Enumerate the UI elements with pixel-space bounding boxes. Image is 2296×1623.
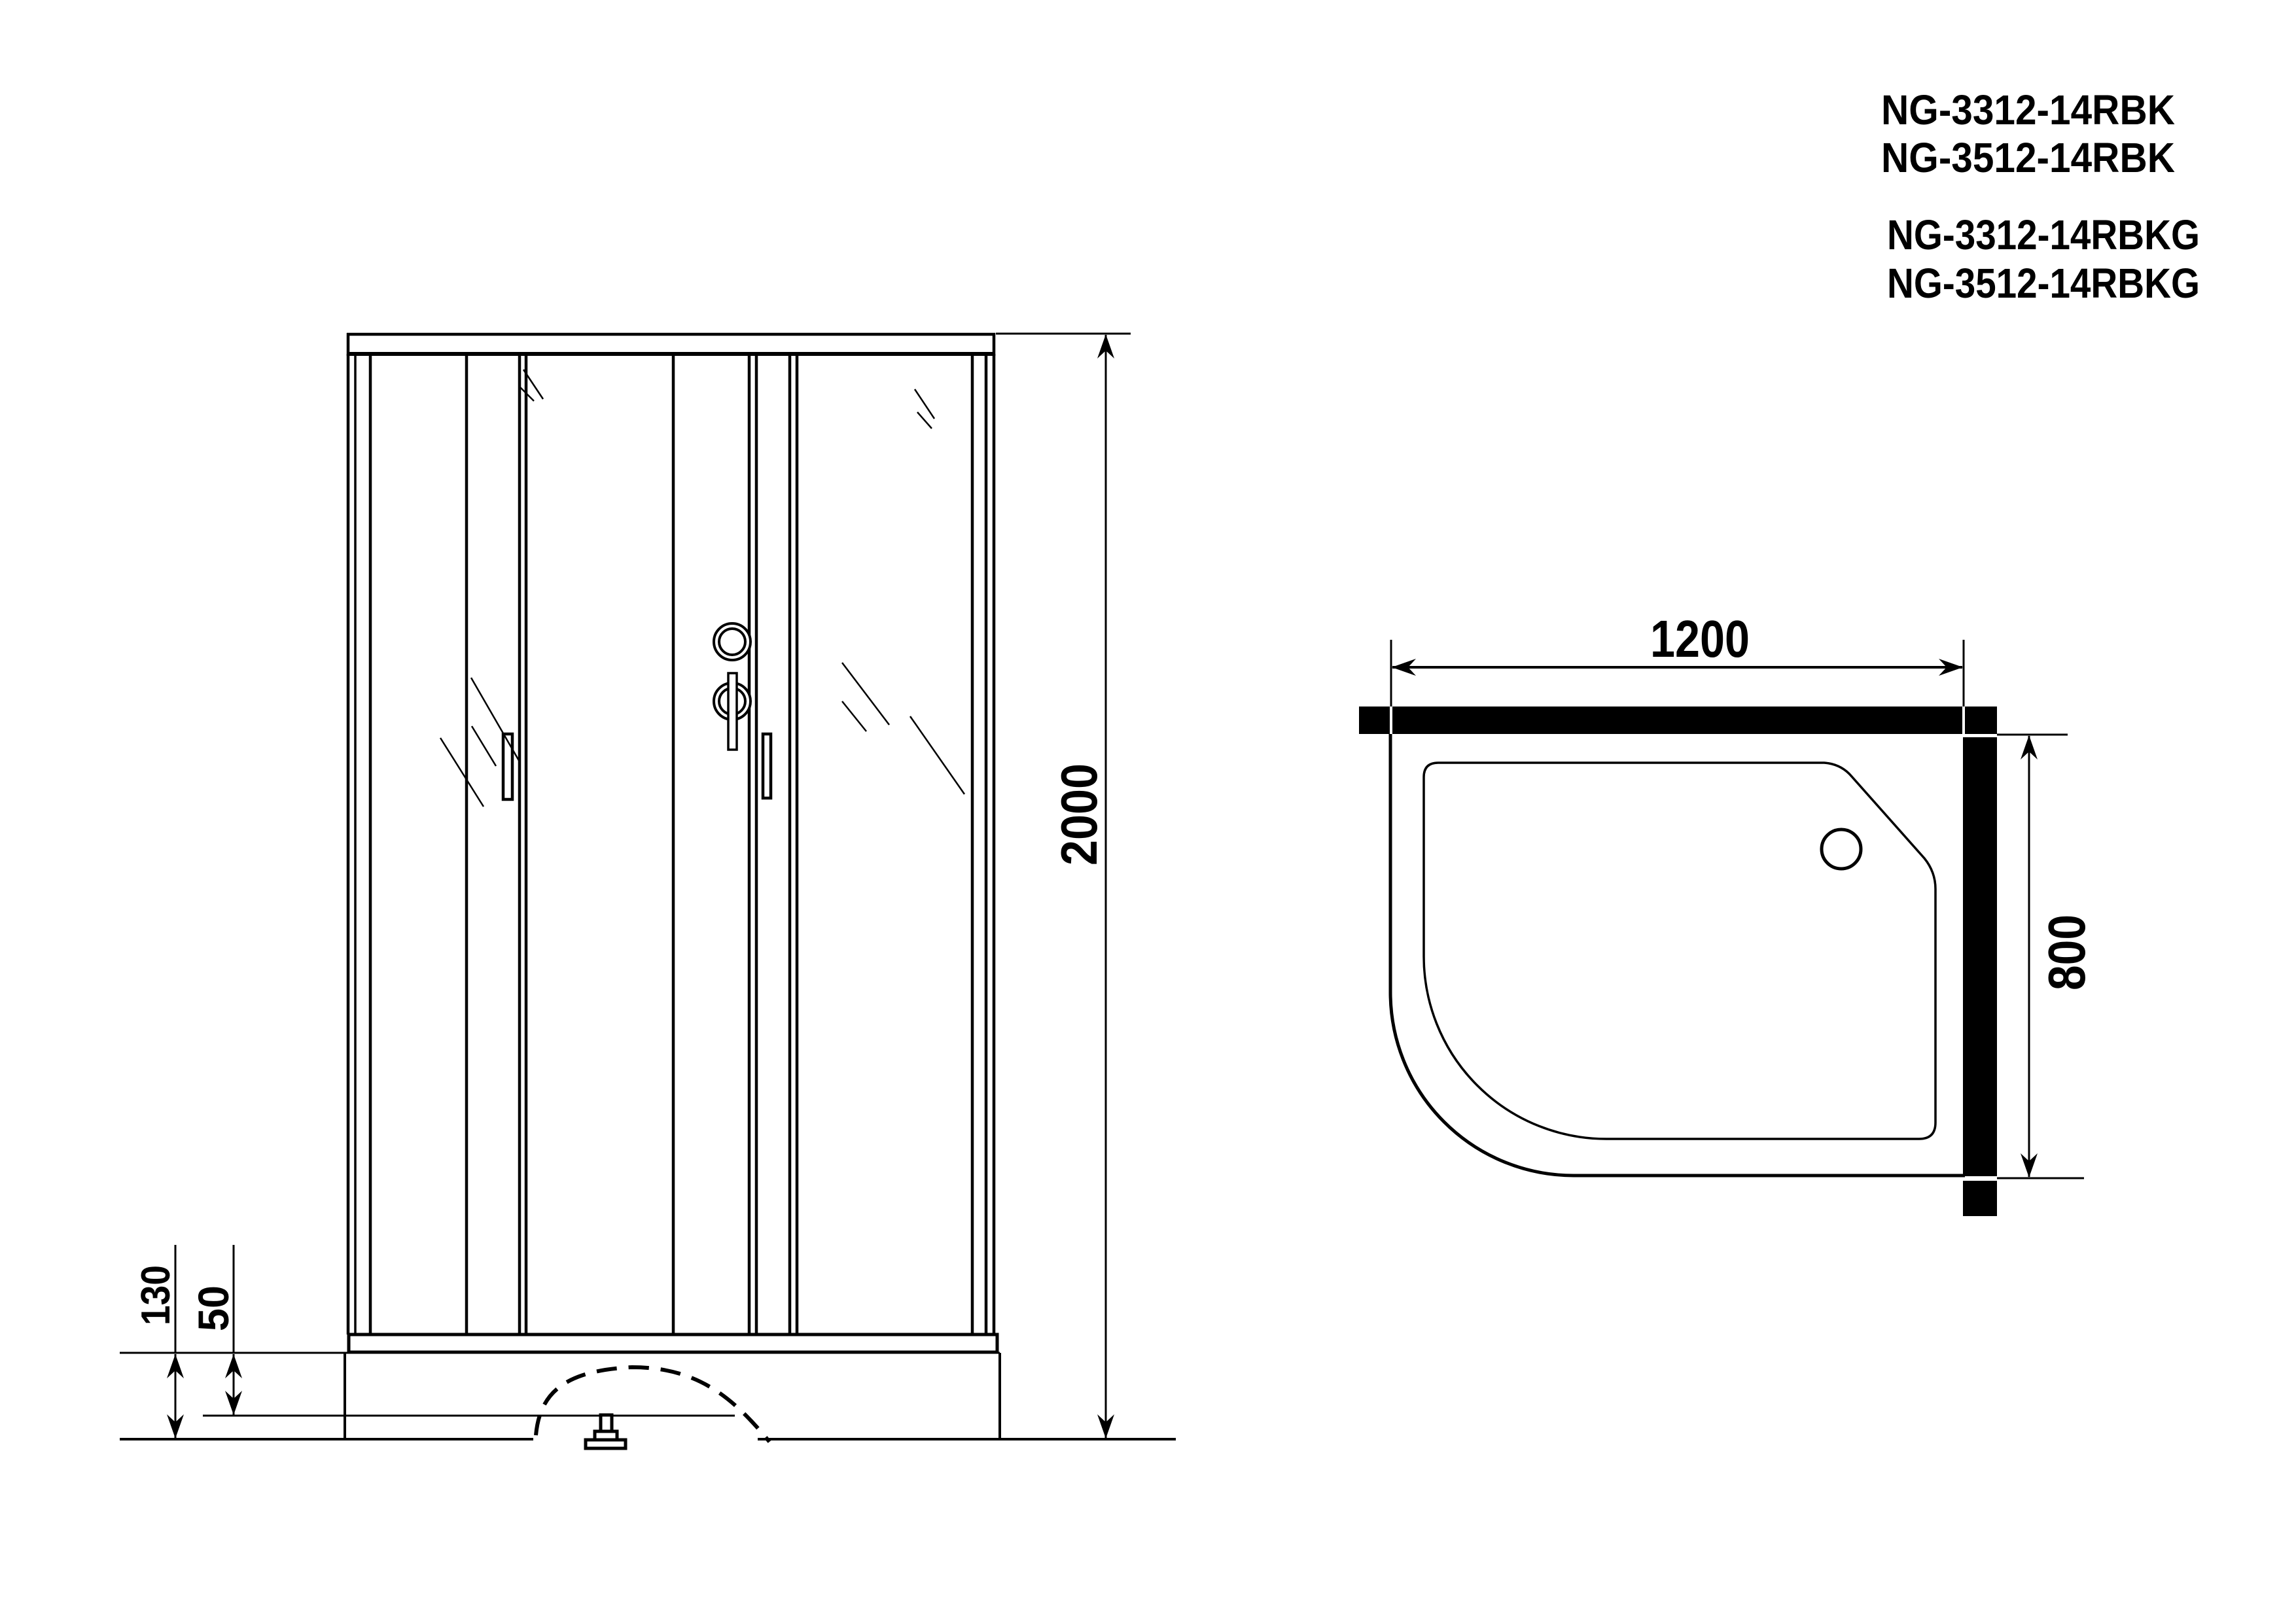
svg-text:NG-3312-14RBK: NG-3312-14RBK (1881, 86, 2175, 133)
svg-text:NG-3512-14RBKG: NG-3512-14RBKG (1887, 260, 2200, 307)
svg-text:2000: 2000 (1050, 763, 1108, 865)
svg-text:800: 800 (2038, 915, 2096, 990)
svg-text:1200: 1200 (1650, 610, 1750, 668)
svg-text:130: 130 (133, 1265, 179, 1325)
svg-text:NG-3312-14RBKG: NG-3312-14RBKG (1887, 211, 2200, 258)
svg-text:NG-3512-14RBK: NG-3512-14RBK (1881, 134, 2175, 181)
svg-text:50: 50 (189, 1285, 238, 1331)
